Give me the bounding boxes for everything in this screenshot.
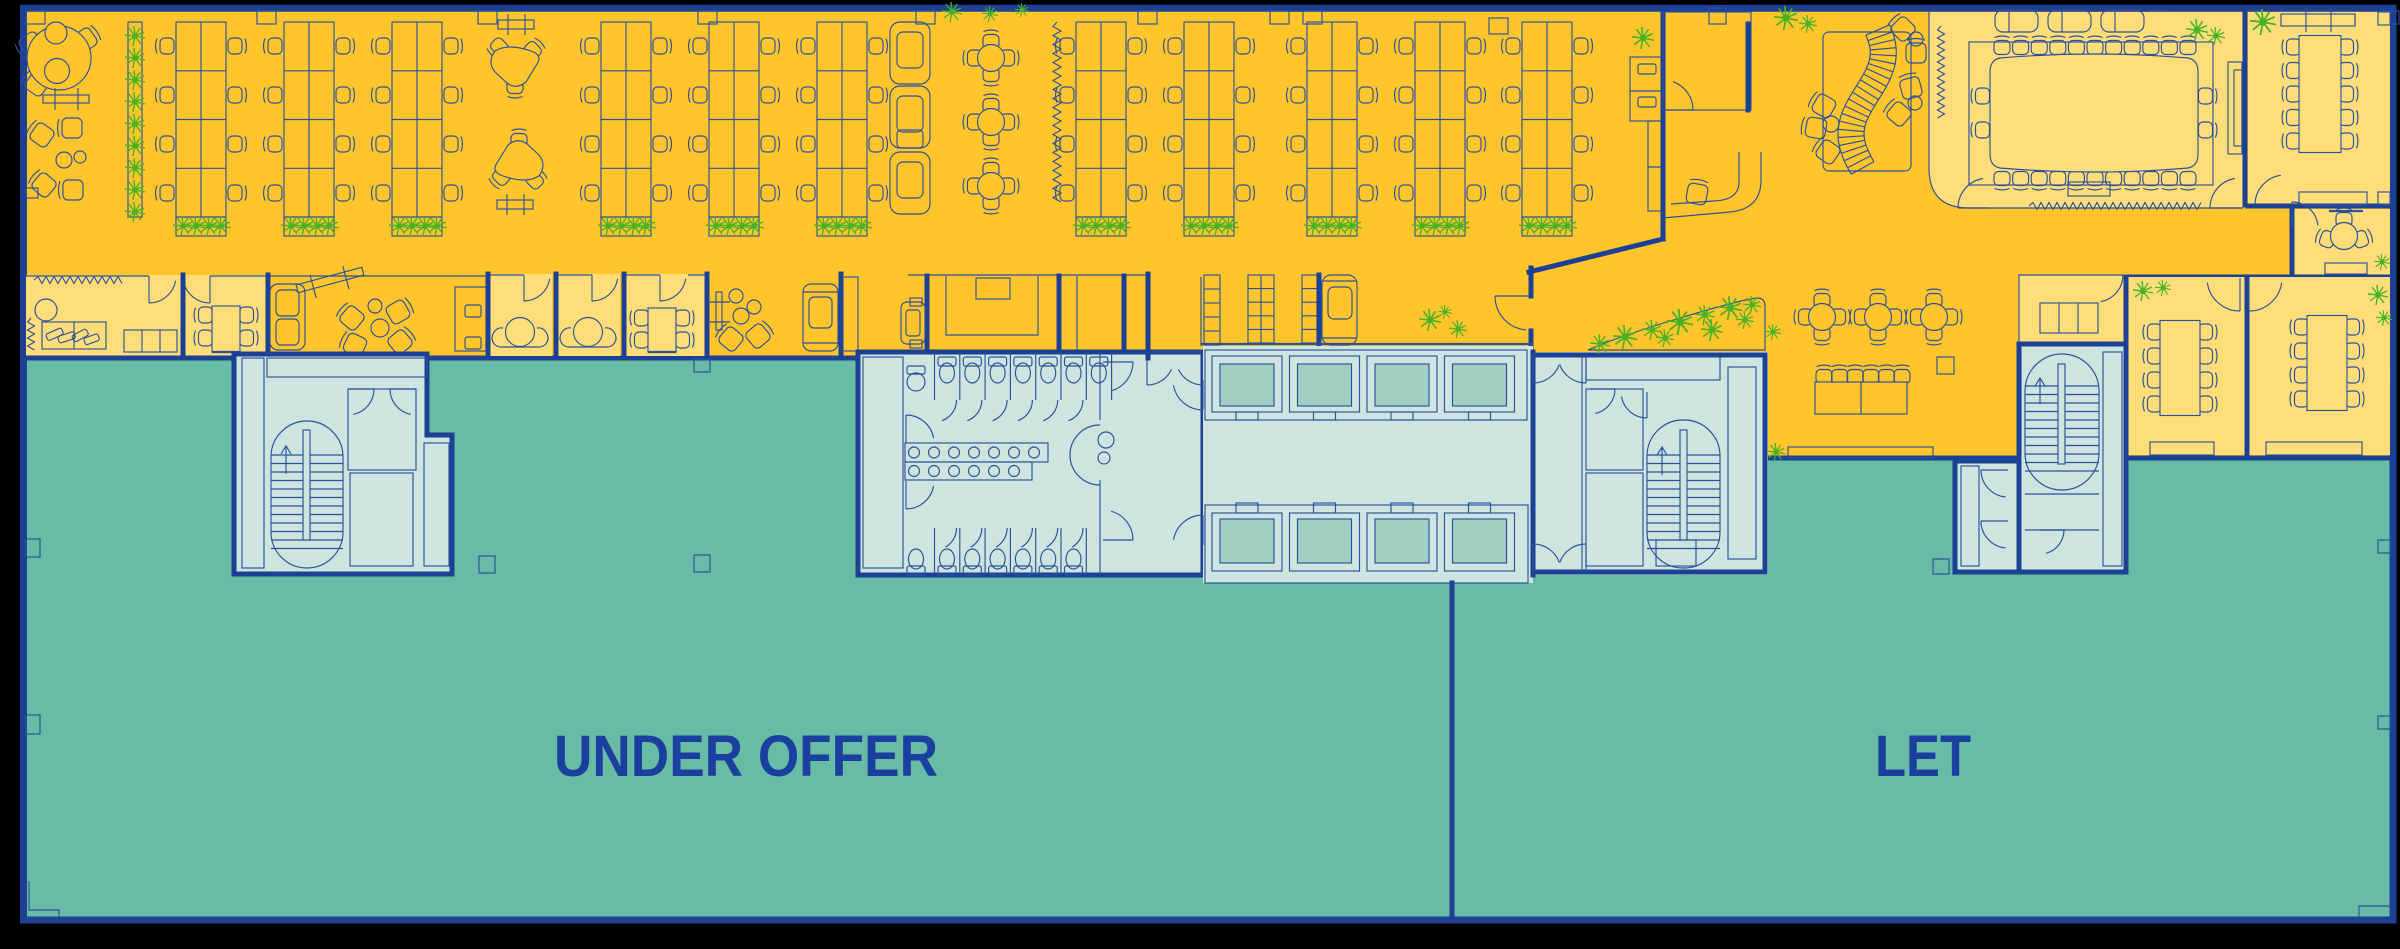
svg-text:LET: LET [1875,724,1971,789]
svg-text:UNDER OFFER: UNDER OFFER [554,724,938,789]
